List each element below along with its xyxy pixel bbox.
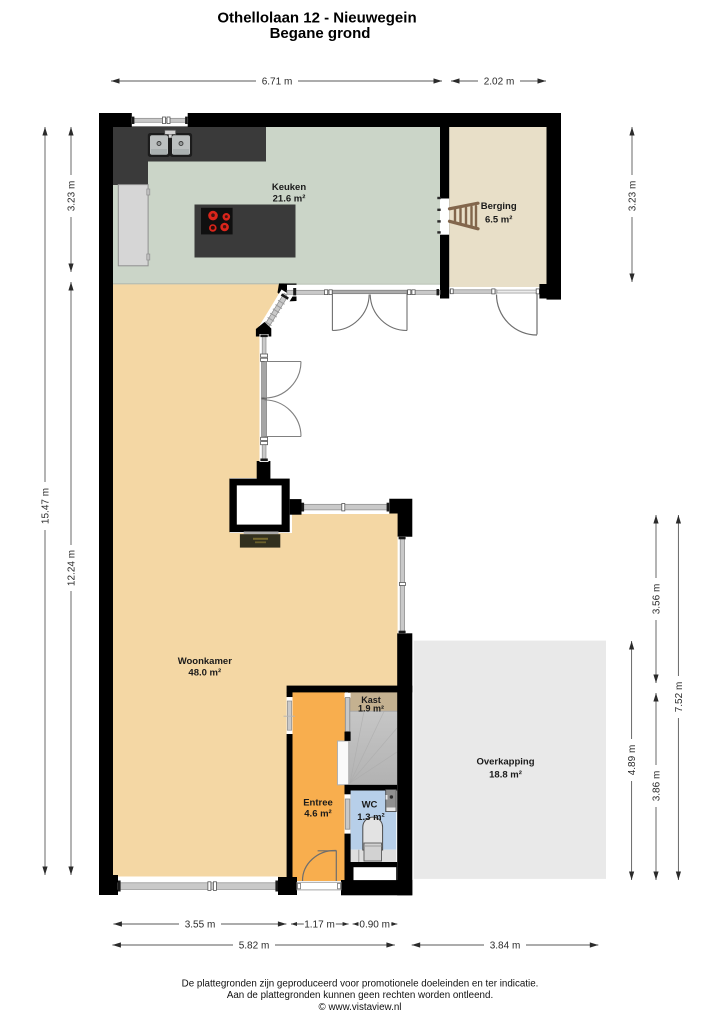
svg-text:5.82 m: 5.82 m — [239, 941, 270, 952]
svg-text:Aan de plattegronden kunnen ge: Aan de plattegronden kunnen geen rechten… — [227, 990, 493, 1001]
svg-text:12.24 m: 12.24 m — [67, 550, 78, 586]
svg-text:4.6 m²: 4.6 m² — [304, 808, 331, 819]
svg-text:1.17 m: 1.17 m — [304, 920, 335, 931]
svg-text:15.47 m: 15.47 m — [41, 488, 52, 524]
svg-text:3.56 m: 3.56 m — [652, 584, 663, 615]
svg-text:Berging: Berging — [481, 201, 517, 212]
svg-text:1.9 m²: 1.9 m² — [358, 703, 384, 713]
svg-text:3.23 m: 3.23 m — [67, 181, 78, 212]
svg-text:WC: WC — [362, 800, 378, 811]
svg-text:7.52 m: 7.52 m — [674, 682, 685, 713]
svg-text:De plattegronden zijn geproduc: De plattegronden zijn geproduceerd voor … — [182, 979, 539, 990]
svg-text:Keuken: Keuken — [272, 182, 307, 193]
svg-text:0.90 m: 0.90 m — [359, 920, 390, 931]
svg-text:Entree: Entree — [303, 797, 333, 808]
svg-text:Othellolaan 12 - Nieuwegein: Othellolaan 12 - Nieuwegein — [217, 10, 416, 27]
svg-text:6.5 m²: 6.5 m² — [485, 214, 512, 225]
svg-text:Woonkamer: Woonkamer — [178, 656, 233, 667]
svg-text:18.8 m²: 18.8 m² — [489, 770, 522, 781]
svg-text:2.02 m: 2.02 m — [484, 77, 515, 88]
svg-text:1.3 m²: 1.3 m² — [357, 812, 384, 823]
svg-text:4.89 m: 4.89 m — [627, 745, 638, 776]
svg-text:Begane grond: Begane grond — [270, 25, 371, 42]
svg-text:3.23 m: 3.23 m — [628, 181, 639, 212]
svg-text:3.86 m: 3.86 m — [652, 771, 663, 802]
svg-text:© www.vistaview.nl: © www.vistaview.nl — [319, 1002, 402, 1013]
svg-text:Overkapping: Overkapping — [476, 757, 534, 768]
svg-text:6.71 m: 6.71 m — [262, 77, 293, 88]
svg-text:21.6 m²: 21.6 m² — [273, 194, 306, 205]
svg-text:3.84 m: 3.84 m — [490, 941, 521, 952]
svg-text:3.55 m: 3.55 m — [185, 920, 216, 931]
svg-text:48.0 m²: 48.0 m² — [188, 668, 221, 679]
